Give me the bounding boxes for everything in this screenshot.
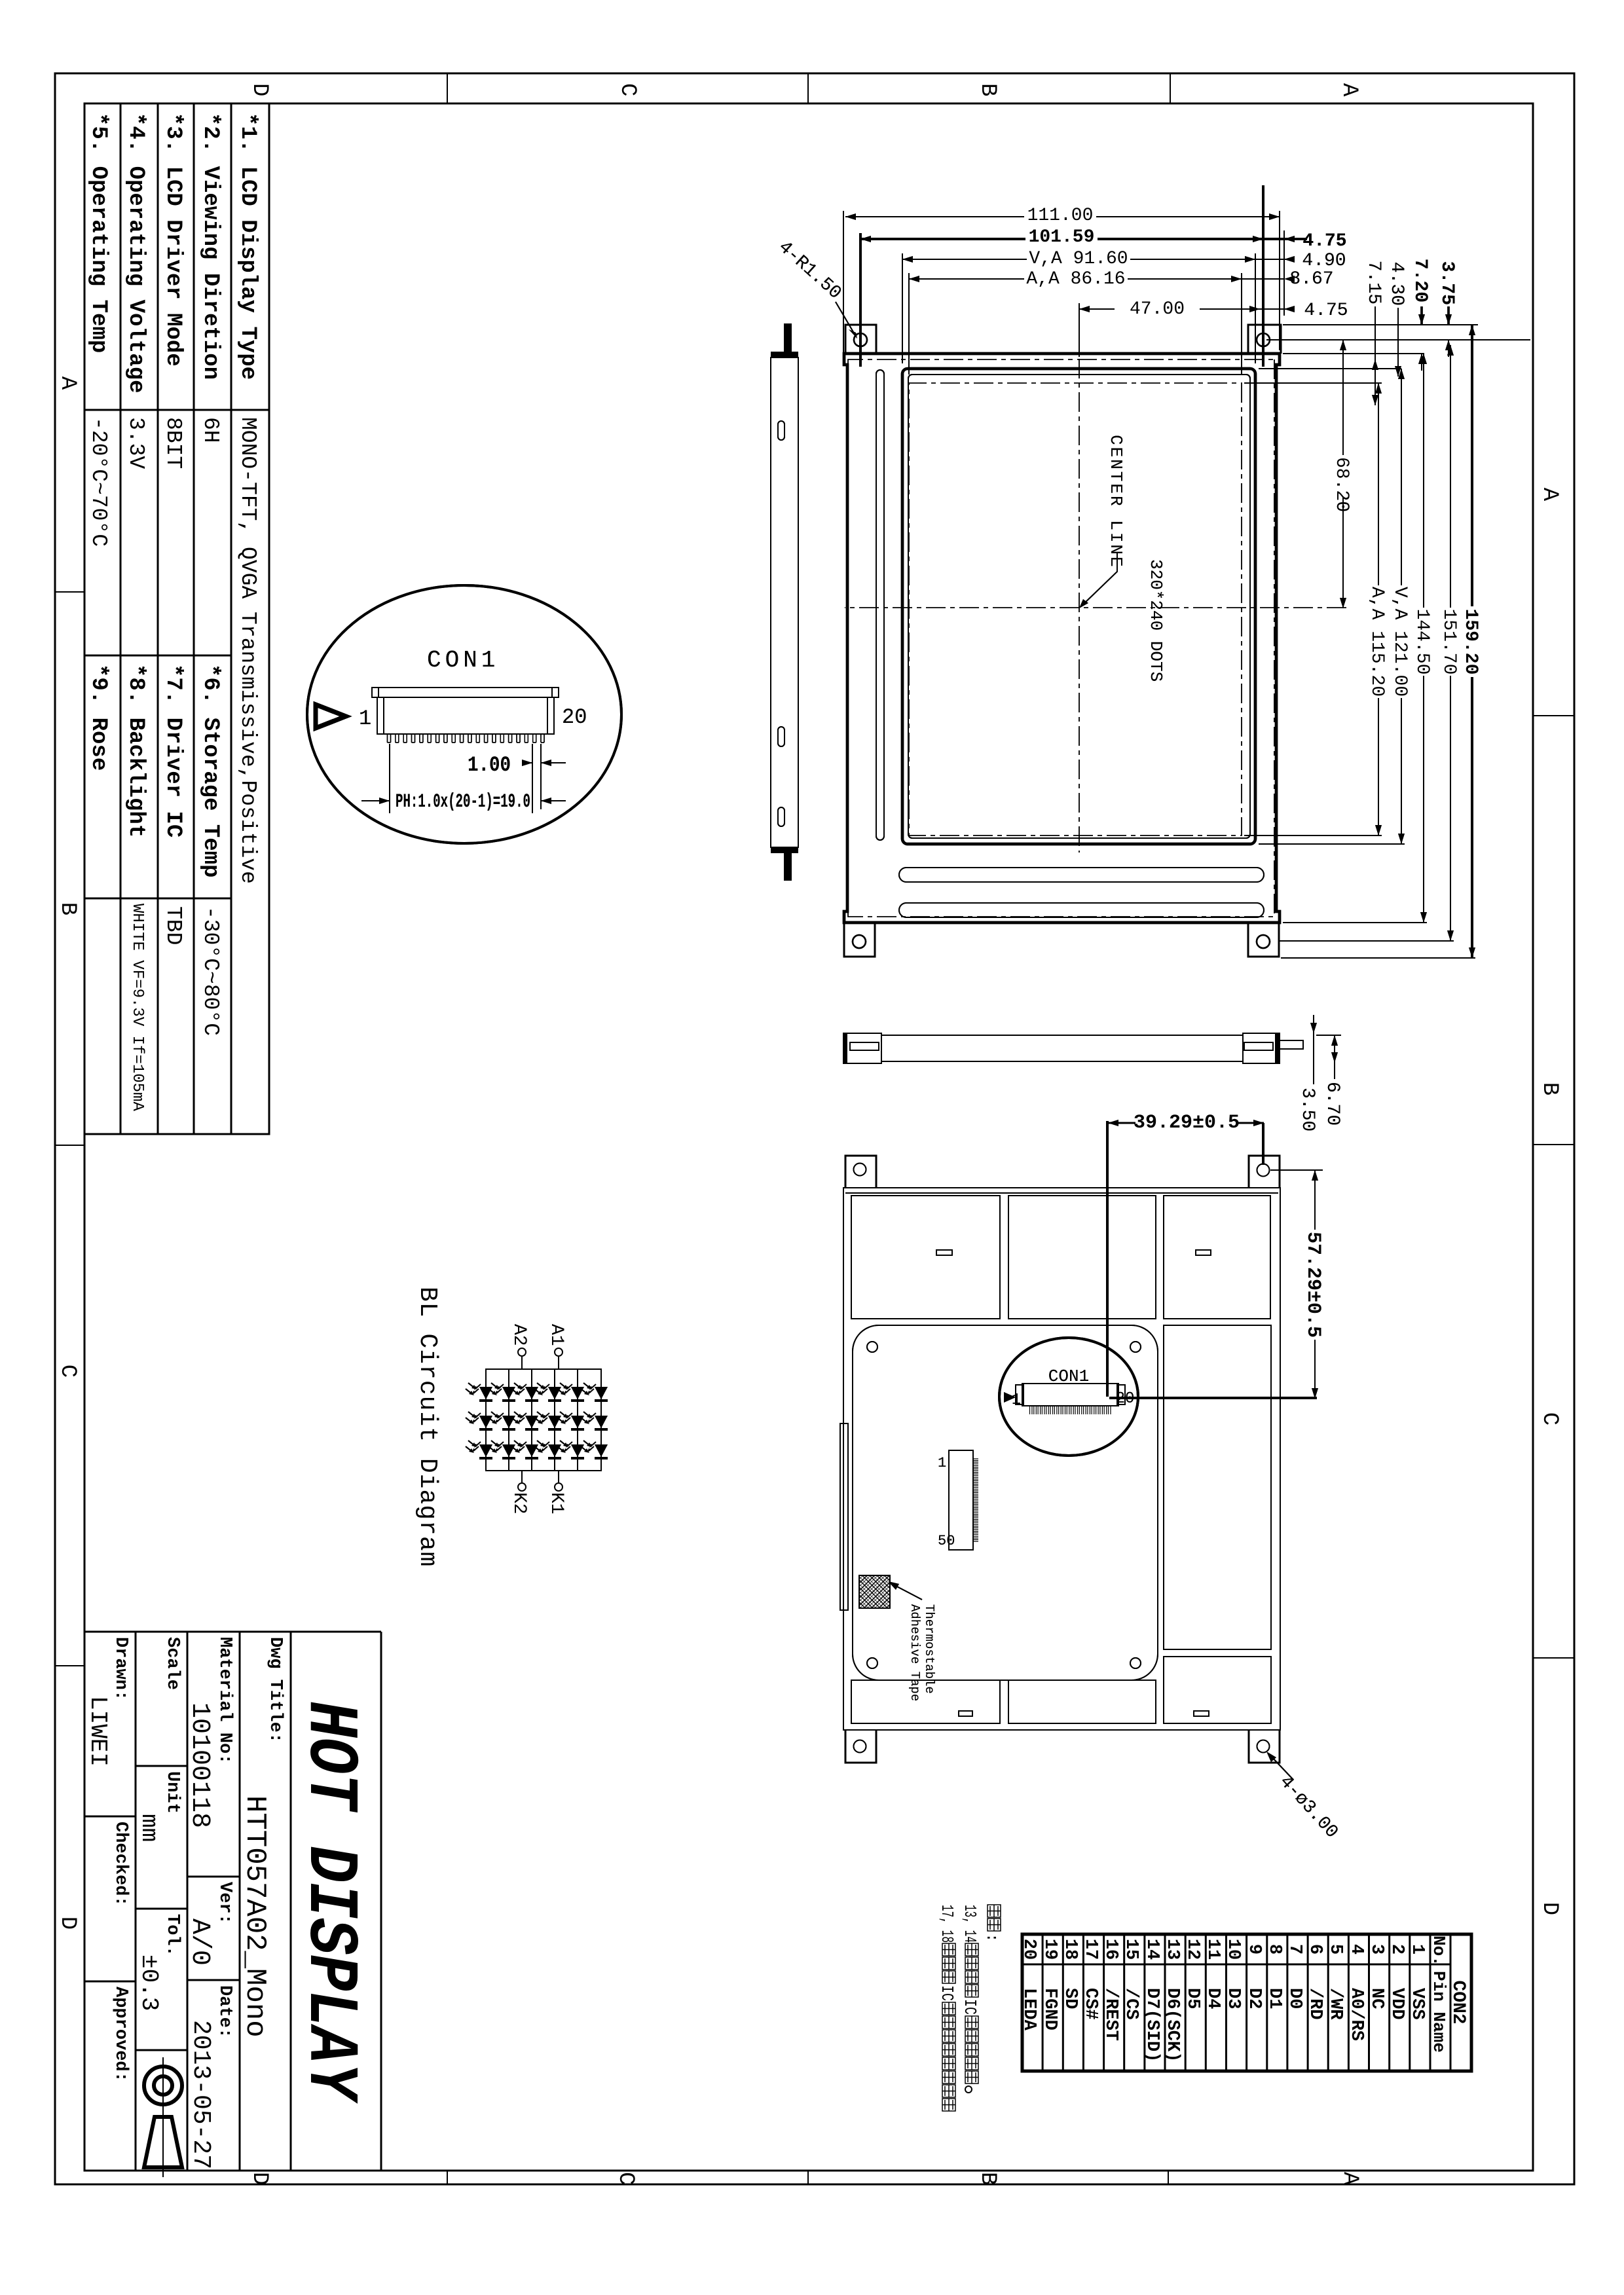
svg-text:16: 16: [1101, 1939, 1120, 1960]
svg-text:*6. Storage Temp: *6. Storage Temp: [198, 664, 223, 877]
svg-text:CON2: CON2: [1448, 1980, 1468, 2024]
svg-text:11: 11: [1203, 1939, 1223, 1960]
svg-text:17: 17: [1080, 1939, 1100, 1960]
svg-text:*5. Operating Temp: *5. Operating Temp: [86, 113, 111, 353]
svg-text:4-ø3.00: 4-ø3.00: [1275, 1772, 1342, 1843]
svg-text:4-R1.50: 4-R1.50: [774, 237, 845, 304]
svg-text:10: 10: [1223, 1939, 1243, 1960]
svg-text:A: A: [1337, 2172, 1362, 2186]
svg-text:CS#: CS#: [1080, 1988, 1100, 2020]
svg-text:18: 18: [1060, 1939, 1080, 1960]
svg-text:7.15: 7.15: [1363, 261, 1384, 304]
svg-text:C: C: [55, 1365, 80, 1378]
svg-text:CON1: CON1: [427, 647, 499, 674]
svg-text:*7. Driver IC: *7. Driver IC: [160, 664, 185, 837]
svg-text:B: B: [975, 83, 1000, 96]
svg-text:12: 12: [1183, 1939, 1202, 1960]
svg-text:V,A 121.00: V,A 121.00: [1390, 587, 1410, 697]
svg-text:4: 4: [1346, 1944, 1366, 1955]
svg-text:±0.3: ±0.3: [136, 1955, 162, 2011]
svg-text:*8. Backlight: *8. Backlight: [123, 664, 148, 837]
svg-text:Tol.: Tol.: [162, 1914, 182, 1956]
svg-text:A2: A2: [509, 1324, 529, 1346]
svg-text:57.29±0.5: 57.29±0.5: [1302, 1232, 1324, 1338]
svg-text:1.00: 1.00: [468, 753, 511, 777]
svg-text:A: A: [1537, 488, 1562, 502]
svg-text:8.67: 8.67: [1289, 269, 1333, 289]
svg-text:IC: IC: [937, 1985, 957, 2001]
svg-text:8: 8: [1264, 1944, 1284, 1955]
svg-text:mm: mm: [136, 1814, 162, 1842]
svg-text:320*240 DOTS: 320*240 DOTS: [1146, 559, 1166, 682]
svg-text:B: B: [1537, 1082, 1562, 1095]
svg-text:HTT057A02_Mono: HTT057A02_Mono: [238, 1795, 271, 2038]
svg-text:6: 6: [1305, 1944, 1325, 1955]
svg-text:C: C: [1537, 1412, 1562, 1425]
svg-text:13: 13: [1162, 1939, 1182, 1960]
svg-text:Thermostable: Thermostable: [922, 1604, 936, 1694]
svg-text:*2. Viewing Diretion: *2. Viewing Diretion: [198, 113, 223, 380]
svg-text:4.75: 4.75: [1304, 301, 1348, 321]
svg-text:144.50: 144.50: [1412, 609, 1432, 675]
svg-text:Unit: Unit: [162, 1771, 182, 1814]
svg-text:K2: K2: [509, 1492, 529, 1515]
svg-text:68.20: 68.20: [1331, 457, 1352, 512]
svg-text:K1: K1: [546, 1492, 566, 1515]
svg-text:*1. LCD Display Type: *1. LCD Display Type: [235, 113, 260, 380]
svg-text:V,A 91.60: V,A 91.60: [1029, 249, 1128, 269]
svg-text:VDD: VDD: [1387, 1988, 1407, 2020]
svg-text:9: 9: [1244, 1944, 1264, 1955]
svg-text:B: B: [975, 2172, 1000, 2185]
svg-text:IC: IC: [960, 1999, 980, 2015]
svg-text:14: 14: [1142, 1939, 1162, 1960]
svg-text:3.75: 3.75: [1437, 261, 1457, 305]
svg-text:Drawn:: Drawn:: [111, 1637, 130, 1700]
svg-text:D: D: [247, 2172, 272, 2185]
svg-text:C: C: [615, 83, 640, 96]
svg-text:A1: A1: [546, 1324, 566, 1346]
svg-text:TBD: TBD: [161, 906, 185, 945]
svg-text:MONO-TFT, QVGA Transmissive,Po: MONO-TFT, QVGA Transmissive,Positive: [236, 417, 260, 884]
svg-text:BL Circuit Diagram: BL Circuit Diagram: [413, 1287, 441, 1567]
svg-text:17, 18: 17, 18: [937, 1905, 957, 1943]
svg-text:159.20: 159.20: [1460, 609, 1481, 675]
svg-text::: :: [982, 1933, 1000, 1942]
svg-text:39.29±0.5: 39.29±0.5: [1134, 1112, 1240, 1134]
svg-text:A: A: [55, 376, 80, 390]
svg-text:20: 20: [562, 705, 587, 729]
svg-text:Scale: Scale: [162, 1637, 182, 1690]
svg-text:HOT DISPLAY: HOT DISPLAY: [289, 1701, 369, 2104]
svg-text:7.20: 7.20: [1410, 259, 1430, 303]
svg-text:1: 1: [1012, 1391, 1021, 1409]
svg-text:Approved:: Approved:: [111, 1987, 130, 2082]
svg-text:D5: D5: [1183, 1988, 1202, 2009]
svg-text:A,A 115.20: A,A 115.20: [1367, 587, 1387, 697]
svg-text:111.00: 111.00: [1027, 206, 1094, 226]
svg-text:WHITE VF=9.3V If=105mA: WHITE VF=9.3V If=105mA: [128, 904, 146, 1111]
svg-text:/CS: /CS: [1121, 1988, 1141, 2020]
svg-text:D2: D2: [1244, 1988, 1264, 2009]
svg-text:D6(SCK): D6(SCK): [1162, 1988, 1182, 2062]
svg-text:D3: D3: [1223, 1988, 1243, 2009]
svg-text:LIWEI: LIWEI: [84, 1696, 111, 1767]
svg-text:1: 1: [1407, 1944, 1427, 1955]
svg-text:D: D: [55, 1917, 80, 1930]
svg-text:A: A: [1337, 83, 1361, 97]
svg-text:SD: SD: [1060, 1988, 1080, 2009]
svg-text:5: 5: [1325, 1944, 1345, 1955]
svg-text:B: B: [55, 902, 80, 915]
svg-text:D0: D0: [1285, 1988, 1304, 2009]
svg-text:D1: D1: [1264, 1988, 1284, 2009]
svg-text:-30°C~80°C: -30°C~80°C: [198, 906, 223, 1036]
svg-text:Pin Name: Pin Name: [1429, 1971, 1449, 2053]
svg-text:No.: No.: [1429, 1936, 1449, 1966]
svg-text:FGND: FGND: [1040, 1988, 1060, 2030]
svg-text:A/0: A/0: [185, 1919, 214, 1966]
svg-text:PH:1.0x(20-1)=19.0: PH:1.0x(20-1)=19.0: [396, 791, 530, 813]
svg-text:2013-05-27: 2013-05-27: [187, 2020, 215, 2169]
svg-text:D7(SID): D7(SID): [1142, 1988, 1162, 2062]
svg-text:-20°C~70°C: -20°C~70°C: [86, 417, 111, 547]
svg-text:*4. Operating Voltage: *4. Operating Voltage: [123, 113, 148, 393]
svg-text:Adhesive Tape: Adhesive Tape: [908, 1604, 922, 1701]
svg-text:VSS: VSS: [1407, 1988, 1427, 2020]
svg-text:151.70: 151.70: [1439, 609, 1459, 675]
svg-text:7: 7: [1285, 1944, 1304, 1955]
svg-text:19: 19: [1040, 1939, 1060, 1960]
svg-text:/REST: /REST: [1101, 1988, 1120, 2041]
svg-text:Dwg Title:: Dwg Title:: [265, 1637, 285, 1743]
svg-text:3: 3: [1367, 1944, 1386, 1955]
svg-text:Material No:: Material No:: [215, 1637, 234, 1764]
svg-text:CENTER LINE: CENTER LINE: [1106, 435, 1126, 569]
svg-text:/RD: /RD: [1305, 1988, 1325, 2020]
svg-text:*3. LCD Driver Mode: *3. LCD Driver Mode: [160, 113, 185, 367]
svg-text:Ver:: Ver:: [215, 1882, 234, 1924]
svg-text:Checked:: Checked:: [111, 1822, 130, 1907]
svg-text:/WR: /WR: [1325, 1988, 1345, 2020]
svg-text:20: 20: [1019, 1939, 1039, 1960]
svg-text:LEDA: LEDA: [1019, 1988, 1039, 2031]
svg-text:Date:: Date:: [215, 1985, 234, 2038]
svg-text:A,A 86.16: A,A 86.16: [1026, 269, 1125, 289]
svg-text:50: 50: [938, 1533, 955, 1549]
svg-text:CON1: CON1: [1048, 1367, 1089, 1386]
svg-text:47.00: 47.00: [1130, 299, 1185, 320]
svg-text:D: D: [1537, 1902, 1562, 1915]
svg-text:3.50: 3.50: [1297, 1088, 1318, 1131]
svg-text:D4: D4: [1203, 1988, 1223, 2009]
svg-text:8BIT: 8BIT: [161, 417, 185, 469]
svg-text:C: C: [613, 2172, 638, 2185]
svg-text:6.70: 6.70: [1322, 1082, 1342, 1126]
svg-text:10100118: 10100118: [185, 1702, 214, 1828]
svg-text:NC: NC: [1367, 1988, 1386, 2009]
svg-text:101.59: 101.59: [1029, 227, 1095, 248]
svg-text:D: D: [247, 83, 272, 96]
svg-text:4.90: 4.90: [1302, 251, 1346, 271]
svg-text:4.75: 4.75: [1302, 231, 1346, 251]
svg-text:1: 1: [938, 1455, 946, 1471]
svg-text:2: 2: [1387, 1944, 1407, 1955]
svg-text:1: 1: [359, 707, 371, 731]
svg-text:13, 14: 13, 14: [960, 1905, 980, 1943]
svg-text:*9. Rose: *9. Rose: [86, 664, 111, 771]
svg-text:15: 15: [1121, 1939, 1141, 1960]
svg-text:3.3V: 3.3V: [124, 417, 148, 469]
svg-text:4.30: 4.30: [1386, 262, 1407, 306]
svg-text:6H: 6H: [198, 417, 223, 443]
svg-text:A0/RS: A0/RS: [1346, 1988, 1366, 2041]
